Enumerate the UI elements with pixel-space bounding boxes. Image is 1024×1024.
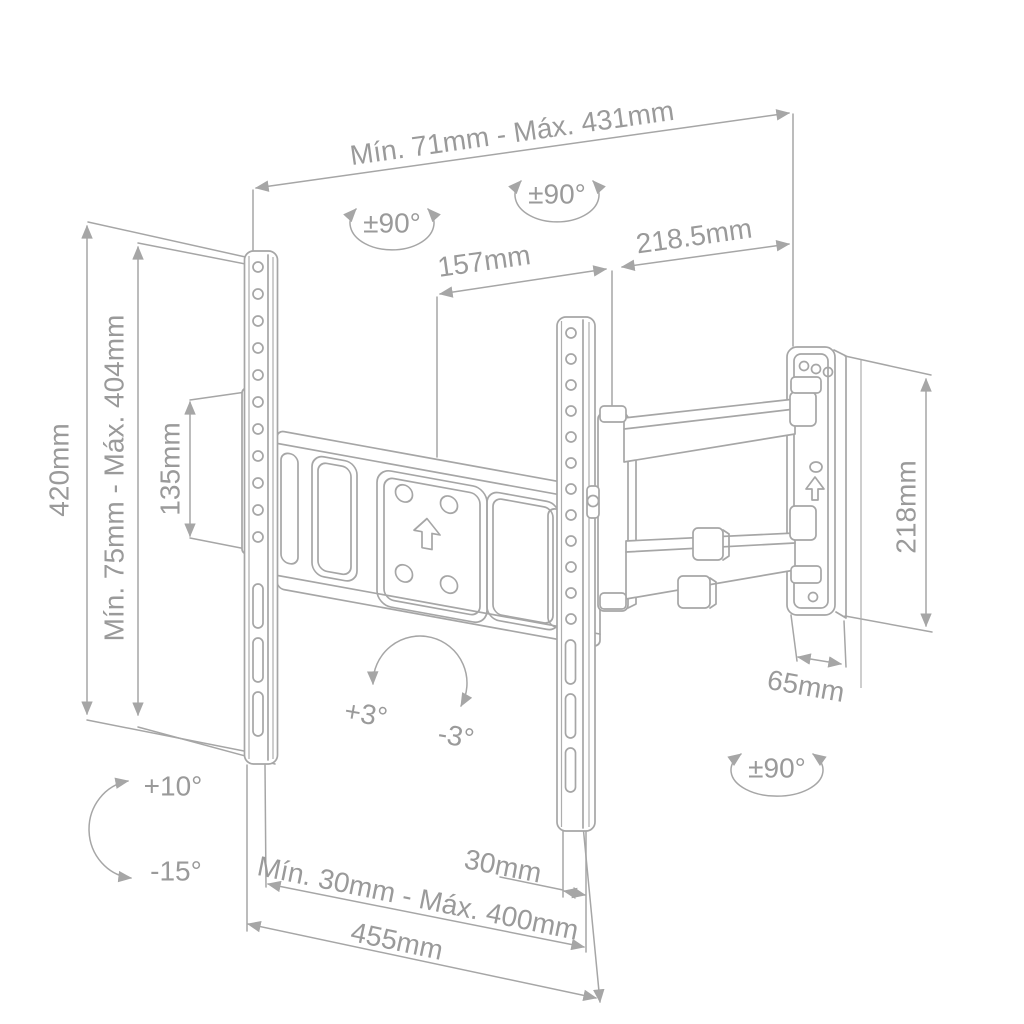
dim-line-65 [798,657,841,664]
level-rotation-arc [373,636,467,706]
hinge-bolt-bottom [791,566,821,583]
wall-mount-dimension-diagram: Mín. 71mm - Máx. 431mm ±90° ±90° 157mm 2… [0,0,1024,1024]
cable-clip-lower [678,576,710,608]
hinge-knuckle-bottom [790,506,816,540]
label-135mm: 135mm [155,422,186,515]
label-minus3: -3° [436,718,477,755]
label-420mm: 420mm [44,423,75,516]
tilt-arc [89,781,131,878]
label-30mm: 30mm [462,843,544,888]
label-65mm: 65mm [765,664,847,708]
arm-upper [624,399,795,462]
label-218mm: 218mm [891,460,922,553]
bolt-head [600,593,626,609]
cable-clip-upper [693,528,723,560]
hinge-knuckle-top [790,392,816,426]
hinge-bolt-top [791,377,821,393]
label-218-5mm: 218.5mm [634,213,754,260]
tv-rail-left [245,251,278,764]
crossbar-bracket [277,430,600,647]
label-455mm: 455mm [348,916,446,966]
label-minus15: -15° [150,856,202,887]
dim-line-30 [564,891,585,895]
diagram-canvas: Mín. 71mm - Máx. 431mm ±90° ±90° 157mm 2… [0,0,1024,1024]
label-plus10: +10° [144,771,203,802]
label-swivel-center: ±90° [528,179,586,210]
bolt-head [600,406,626,422]
label-plus3: +3° [342,695,390,733]
label-top-span: Mín. 71mm - Máx. 431mm [348,95,676,171]
label-157mm: 157mm [436,239,533,283]
articulating-arm [587,377,821,611]
pivot-tab [587,486,599,518]
label-swivel-wall: ±90° [748,753,806,784]
label-swivel-left: ±90° [363,208,421,239]
tv-rail-right [557,317,595,831]
label-left-span: Mín. 75mm - Máx. 404mm [99,315,130,642]
